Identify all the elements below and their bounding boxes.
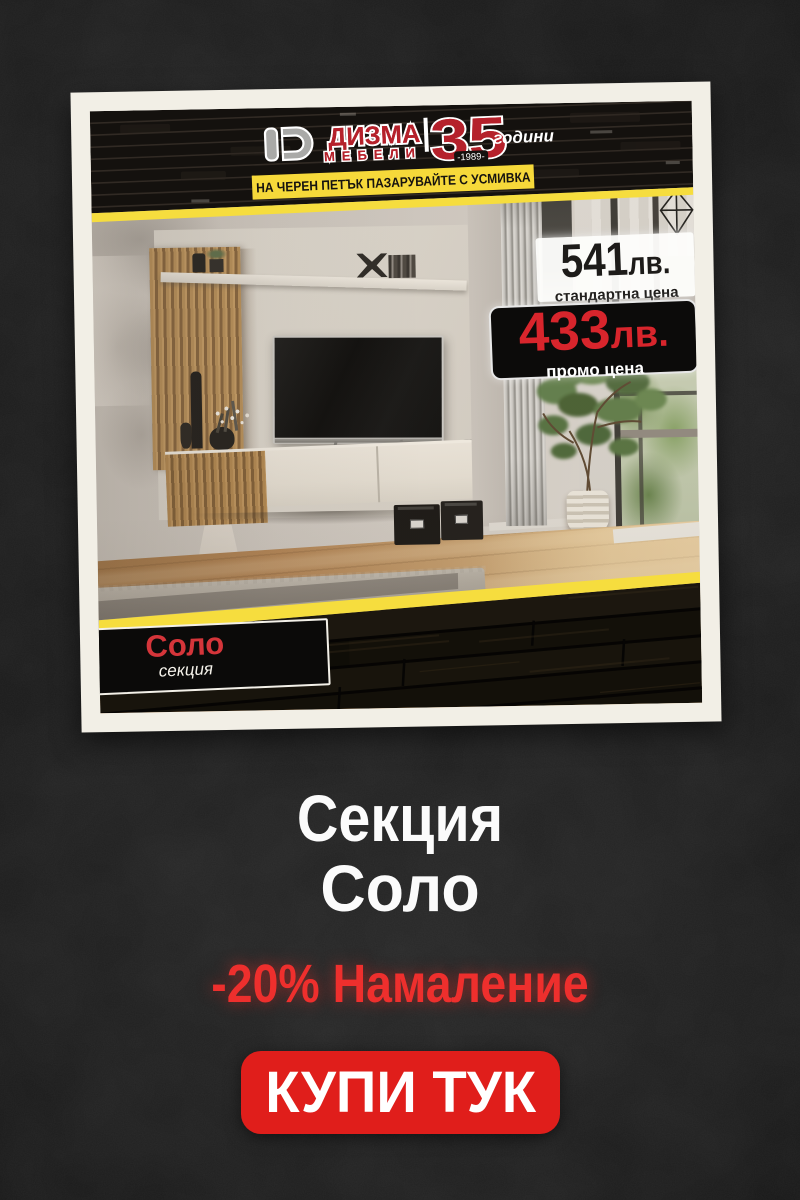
svg-text:-1989-: -1989-	[457, 151, 485, 163]
svg-text:години: години	[493, 126, 555, 148]
svg-text:МЕБЕЛИ: МЕБЕЛИ	[324, 145, 423, 164]
